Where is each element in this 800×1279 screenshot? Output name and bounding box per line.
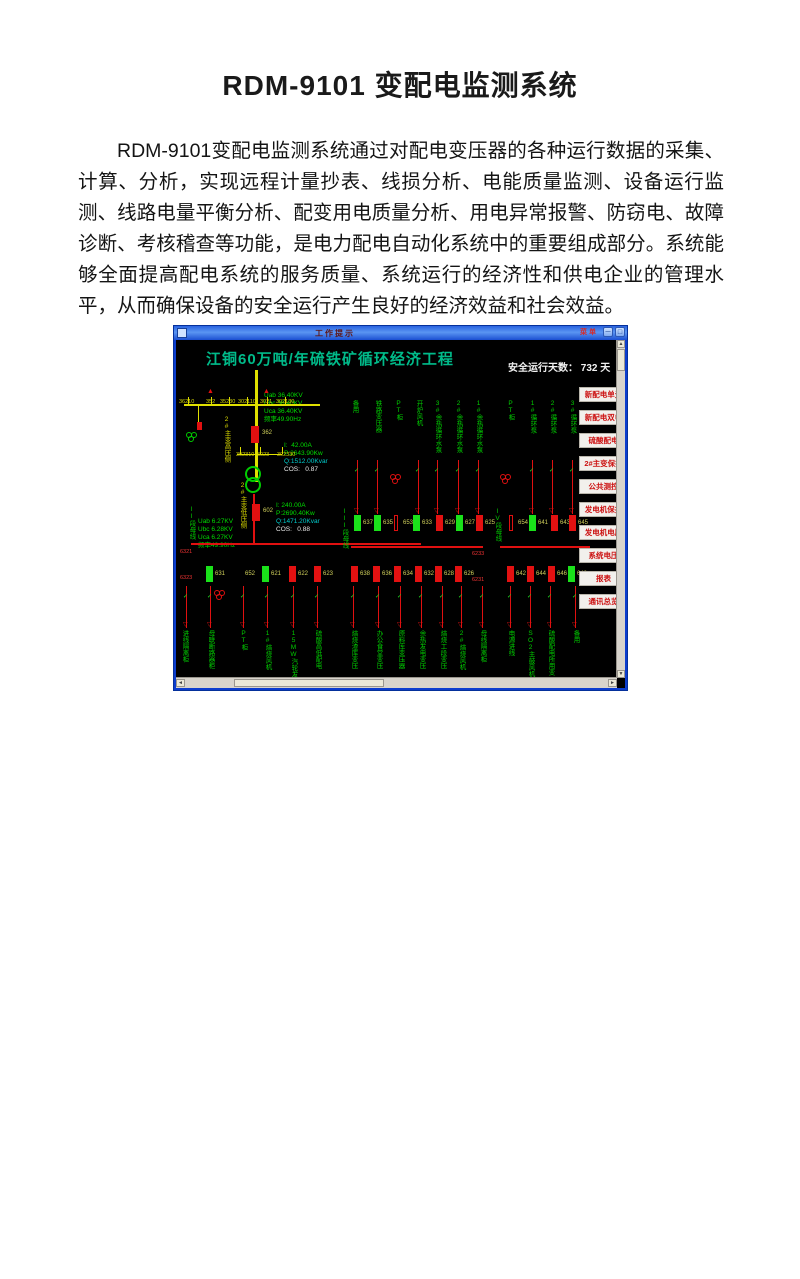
breaker-number: 653 bbox=[403, 520, 413, 526]
breaker-state-indicator bbox=[289, 566, 296, 582]
screen-nav-button[interactable]: 系统电压 bbox=[579, 548, 619, 563]
vertical-scroll-thumb[interactable] bbox=[617, 349, 625, 371]
window-titlebar[interactable]: 工作提示 菜单 － □ bbox=[174, 326, 627, 340]
breaker-device[interactable]: 629 bbox=[436, 515, 452, 533]
pt-transformer-icon bbox=[390, 474, 402, 485]
lv-bus-metrics: Uab 6.27KVUbc 6.28KVUca 6.27KV频率49.90Hz bbox=[198, 494, 235, 550]
feeder-name: 2#余热循环水泵 bbox=[454, 400, 462, 453]
breaker-number: 623 bbox=[323, 571, 333, 577]
horizontal-scrollbar[interactable]: ◄ ► bbox=[176, 677, 617, 688]
equipment-label: 362 bbox=[262, 430, 272, 436]
screen-nav-button[interactable]: 2#主变保护 bbox=[579, 456, 619, 471]
feeder-symbol bbox=[243, 586, 244, 628]
breaker-number: 627 bbox=[465, 520, 475, 526]
maximize-icon[interactable]: □ bbox=[615, 327, 625, 337]
scroll-left-icon[interactable]: ◄ bbox=[176, 679, 185, 687]
metric-line: Uca 36.40KV bbox=[264, 408, 303, 416]
metric-line: I: 42.00A bbox=[284, 442, 328, 450]
safe-days-label: 安全运行天数： bbox=[508, 363, 578, 374]
breaker-device[interactable]: 653 bbox=[394, 515, 410, 533]
feeder-symbol bbox=[210, 586, 211, 628]
breaker-device[interactable]: 635 bbox=[374, 515, 390, 533]
breaker-number: 622 bbox=[298, 571, 308, 577]
breaker-number: 636 bbox=[382, 571, 392, 577]
switch-label: 352 bbox=[206, 399, 215, 405]
breaker-state-indicator bbox=[262, 566, 269, 582]
breaker-number: 631 bbox=[215, 571, 225, 577]
screen-nav-button[interactable]: 公共测控 bbox=[579, 479, 619, 494]
equipment-label: 602 bbox=[263, 508, 273, 514]
breaker-device[interactable]: 654 bbox=[509, 515, 525, 533]
hv-power-readings: I: 42.00AP:2643.90KwQ:1512.00KvarCOS: 0.… bbox=[284, 418, 328, 474]
single-line-diagram: 江铜60万吨/年硫铁矿循环经济工程 安全运行天数： 732 天 Uab 36.4… bbox=[178, 342, 619, 680]
transformer-side-label: 2#主变高压侧 bbox=[222, 416, 230, 463]
screen-nav-button[interactable]: 新配电双电 bbox=[579, 410, 619, 425]
metric-line: Q:1471.20Kvar bbox=[276, 518, 320, 526]
feeder-symbol bbox=[378, 586, 379, 628]
metric-line: Uab 6.27KV bbox=[198, 518, 235, 526]
feeder-name: PT柜 bbox=[506, 400, 514, 421]
breaker-number: 654 bbox=[518, 520, 528, 526]
breaker-device[interactable]: 636 bbox=[373, 566, 389, 584]
breaker-number: 638 bbox=[360, 571, 370, 577]
feeder-name: 开炉风机 bbox=[414, 400, 422, 426]
vertical-scrollbar[interactable]: ▲ ▼ bbox=[616, 340, 625, 678]
breaker-device[interactable]: 633 bbox=[413, 515, 429, 533]
feeder-name: 焙烧工段变压 bbox=[438, 630, 446, 669]
page-title: RDM-9101 变配电监测系统 bbox=[0, 64, 800, 104]
scroll-up-icon[interactable]: ▲ bbox=[617, 340, 625, 348]
bus-line bbox=[191, 543, 421, 545]
feeder-symbol bbox=[552, 460, 553, 514]
breaker-state-indicator bbox=[568, 566, 575, 582]
feeder-name: 1#余热循环水泵 bbox=[474, 400, 482, 453]
screen-nav-button[interactable]: 硫酸配电 bbox=[579, 433, 619, 448]
breaker-device[interactable]: 632 bbox=[415, 566, 431, 584]
feeder-name: 备用 bbox=[571, 630, 579, 643]
breaker-state-indicator bbox=[436, 515, 443, 531]
feeder-name: PT柜 bbox=[394, 400, 402, 421]
bus-number: 6323 bbox=[180, 575, 192, 581]
breaker-state-indicator bbox=[529, 515, 536, 531]
feeder-symbol bbox=[478, 460, 479, 514]
feeder-symbol bbox=[353, 586, 354, 628]
feeder-name: 备用 bbox=[350, 400, 358, 413]
breaker-device[interactable]: 642 bbox=[507, 566, 523, 584]
breaker-number: 633 bbox=[422, 520, 432, 526]
bus-section-label: III段母线 bbox=[340, 508, 348, 549]
screen-nav-button[interactable]: 报表 bbox=[579, 571, 619, 586]
screen-nav-button[interactable]: 新配电单元 bbox=[579, 387, 619, 402]
screen-nav-button[interactable]: 发电机保护 bbox=[579, 502, 619, 517]
diagram-title: 江铜60万吨/年硫铁矿循环经济工程 bbox=[206, 348, 454, 369]
document-page: RDM-9101 变配电监测系统 RDM-9101变配电监测系统通过对配电变压器… bbox=[0, 0, 800, 1279]
pt-transformer-icon bbox=[500, 474, 512, 485]
switch-label: 302310 bbox=[236, 452, 254, 458]
breaker-number: 629 bbox=[445, 520, 455, 526]
breaker-state-indicator bbox=[415, 566, 422, 582]
breaker-state-indicator bbox=[456, 515, 463, 531]
window-menu[interactable]: 菜单 bbox=[580, 327, 598, 337]
feeder-symbol bbox=[186, 586, 187, 628]
breaker-device[interactable]: 625 bbox=[476, 515, 492, 533]
breaker-state-indicator bbox=[455, 566, 462, 582]
breaker-device[interactable]: 652 bbox=[236, 566, 252, 584]
window-icon bbox=[177, 328, 187, 338]
hv-bus-metrics: Uab 36.40KVUbc 36.40KVUca 36.40KV频率49.90… bbox=[264, 368, 303, 424]
breaker-device[interactable]: 627 bbox=[456, 515, 472, 533]
breaker-number: 635 bbox=[383, 520, 393, 526]
feeder-name: 1#循环泵 bbox=[528, 400, 536, 434]
switch-label: 36210 bbox=[179, 399, 194, 405]
bus-line bbox=[500, 546, 590, 548]
feeder-name: 母联断路器柜 bbox=[206, 630, 214, 669]
breaker-device[interactable]: 622 bbox=[289, 566, 305, 584]
breaker-number: 637 bbox=[363, 520, 373, 526]
breaker-number: 646 bbox=[557, 571, 567, 577]
breaker-device[interactable]: 637 bbox=[354, 515, 370, 533]
breaker-device[interactable]: 628 bbox=[435, 566, 451, 584]
feeder-name: SO2主鼓风机 bbox=[526, 630, 534, 677]
feeder-name: 进线隔离柜 bbox=[180, 630, 188, 663]
feeder-symbol bbox=[572, 460, 573, 514]
breaker-state-indicator bbox=[373, 566, 380, 582]
breaker-state-indicator bbox=[527, 566, 534, 582]
breaker-device[interactable]: 644 bbox=[527, 566, 543, 584]
breaker-state-indicator bbox=[206, 566, 213, 582]
feeder-symbol bbox=[575, 586, 576, 628]
breaker-state-indicator bbox=[354, 515, 361, 531]
breaker-state-indicator bbox=[476, 515, 483, 531]
lv-power-readings: I: 240.00AP:2690.40KwQ:1471.20KvarCOS: 0… bbox=[276, 478, 320, 534]
breaker-number: 642 bbox=[516, 571, 526, 577]
bus-line bbox=[197, 422, 202, 430]
breaker-state-indicator bbox=[413, 515, 420, 531]
navigation-button-column: 新配电单元新配电双电硫酸配电2#主变保护公共测控发电机保护发电机电压系统电压报表… bbox=[579, 342, 619, 680]
switch-label: 3021 bbox=[260, 399, 272, 405]
breaker-state-indicator bbox=[569, 515, 576, 531]
bus-section-label: II段母线 bbox=[187, 506, 195, 540]
feeder-name: 电源进线 bbox=[506, 630, 514, 656]
breaker-state-indicator bbox=[314, 566, 321, 582]
breaker-state-indicator bbox=[435, 566, 442, 582]
feeder-name: 铁路变压器 bbox=[373, 400, 381, 433]
breaker-number: 652 bbox=[245, 571, 255, 577]
breaker-number: 641 bbox=[538, 520, 548, 526]
minimize-icon[interactable]: － bbox=[603, 327, 613, 337]
feeder-symbol bbox=[400, 586, 401, 628]
bus-line bbox=[351, 546, 483, 548]
disconnector-arrow-icon: ▲ bbox=[263, 388, 270, 395]
feeder-symbol bbox=[530, 586, 531, 628]
feeder-symbol bbox=[461, 586, 462, 628]
feeder-name: 15MW汽轮发电 bbox=[289, 630, 297, 680]
feeder-symbol bbox=[317, 586, 318, 628]
breaker-state-indicator bbox=[507, 566, 514, 582]
switch-label: 35230 bbox=[220, 399, 235, 405]
breaker-state-indicator bbox=[394, 566, 401, 582]
screen-nav-button[interactable]: 通讯总览 bbox=[579, 594, 619, 609]
body-paragraph: RDM-9101变配电监测系统通过对配电变压器的各种运行数据的采集、计算、分析，… bbox=[78, 136, 724, 322]
feeder-name: 1#焙烧风机 bbox=[263, 630, 271, 670]
breaker-number: 634 bbox=[403, 571, 413, 577]
breaker-state-indicator bbox=[551, 515, 558, 531]
breaker-number: 644 bbox=[536, 571, 546, 577]
feeder-name: 焙烧渣库变压 bbox=[349, 630, 357, 669]
feeder-name: PT柜 bbox=[239, 630, 247, 651]
feeder-name: 2#焙烧风机 bbox=[457, 630, 465, 670]
breaker-state-indicator bbox=[394, 515, 398, 531]
breaker-device[interactable]: 643 bbox=[551, 515, 567, 533]
feeder-name: 3#循环泵 bbox=[568, 400, 576, 434]
disconnector-arrow-icon: ▲ bbox=[207, 388, 214, 395]
metric-line: Ubc 6.28KV bbox=[198, 526, 235, 534]
feeder-name: 母线隔离柜 bbox=[478, 630, 486, 663]
breaker-device[interactable]: 646 bbox=[548, 566, 564, 584]
bus-line bbox=[251, 426, 259, 443]
metric-line: Q:1512.00Kvar bbox=[284, 458, 328, 466]
feeder-symbol bbox=[421, 586, 422, 628]
switch-label: 302110 bbox=[238, 399, 256, 405]
scroll-down-icon[interactable]: ▼ bbox=[617, 670, 625, 678]
breaker-state-indicator bbox=[509, 515, 513, 531]
metric-line: COS: 0.88 bbox=[276, 526, 320, 534]
bus-line bbox=[252, 504, 260, 521]
feeder-symbol bbox=[437, 460, 438, 514]
feeder-symbol bbox=[482, 586, 483, 628]
switch-label: 302130 bbox=[276, 399, 294, 405]
feeder-symbol bbox=[532, 460, 533, 514]
feeder-symbol bbox=[267, 586, 268, 628]
metric-line: P:2690.40Kw bbox=[276, 510, 320, 518]
window-title: 工作提示 bbox=[315, 328, 355, 339]
window-content: 江铜60万吨/年硫铁矿循环经济工程 安全运行天数： 732 天 Uab 36.4… bbox=[176, 340, 625, 688]
feeder-symbol bbox=[418, 460, 419, 514]
breaker-number: 626 bbox=[464, 571, 474, 577]
feeder-name: 原料库变压器 bbox=[396, 630, 404, 669]
feeder-symbol bbox=[458, 460, 459, 514]
feeder-symbol bbox=[442, 586, 443, 628]
bus-number: 6321 bbox=[180, 549, 192, 555]
breaker-device[interactable]: 641 bbox=[529, 515, 545, 533]
metric-line: I: 240.00A bbox=[276, 502, 320, 510]
main-transformer-icon bbox=[245, 466, 263, 494]
metric-line: COS: 0.87 bbox=[284, 466, 328, 474]
breaker-state-indicator bbox=[374, 515, 381, 531]
breaker-number: 632 bbox=[424, 571, 434, 577]
breaker-number: 628 bbox=[444, 571, 454, 577]
metric-line: Uca 6.27KV bbox=[198, 534, 235, 542]
feeder-symbol bbox=[377, 460, 378, 514]
feeder-name: 3#余热循环水泵 bbox=[433, 400, 441, 453]
feeder-name: 硫酸配电所用变 bbox=[546, 630, 554, 676]
breaker-device[interactable]: 634 bbox=[394, 566, 410, 584]
screen-nav-button[interactable]: 发电机电压 bbox=[579, 525, 619, 540]
horizontal-scroll-thumb[interactable] bbox=[234, 679, 384, 687]
feeder-name: 办公食堂变压 bbox=[374, 630, 382, 669]
feeder-symbol bbox=[510, 586, 511, 628]
feeder-symbol bbox=[357, 460, 358, 514]
feeder-name: 余热发电变压 bbox=[417, 630, 425, 669]
feeder-name: 硫酸高低配电 bbox=[313, 630, 321, 669]
breaker-number: 621 bbox=[271, 571, 281, 577]
breaker-device[interactable]: 638 bbox=[351, 566, 367, 584]
bus-number: 6231 bbox=[472, 577, 484, 583]
breaker-state-indicator bbox=[548, 566, 555, 582]
feeder-name: 2#循环泵 bbox=[548, 400, 556, 434]
pt-transformer-icon bbox=[214, 590, 226, 601]
breaker-device[interactable]: 621 bbox=[262, 566, 278, 584]
switch-label: 3023 bbox=[257, 452, 269, 458]
scada-window: 工作提示 菜单 － □ 江铜60万吨/年硫铁矿循环经济工程 安全运行天数： 73… bbox=[173, 325, 628, 691]
feeder-symbol bbox=[550, 586, 551, 628]
breaker-device[interactable]: 626 bbox=[455, 566, 471, 584]
breaker-number: 625 bbox=[485, 520, 495, 526]
switch-label: 302330 bbox=[277, 452, 295, 458]
pt-transformer-icon bbox=[186, 432, 198, 443]
breaker-device[interactable]: 631 bbox=[206, 566, 222, 584]
scroll-right-icon[interactable]: ► bbox=[608, 679, 617, 687]
breaker-state-indicator bbox=[351, 566, 358, 582]
feeder-symbol bbox=[293, 586, 294, 628]
bus-number: 6233 bbox=[472, 551, 484, 557]
breaker-device[interactable]: 623 bbox=[314, 566, 330, 584]
